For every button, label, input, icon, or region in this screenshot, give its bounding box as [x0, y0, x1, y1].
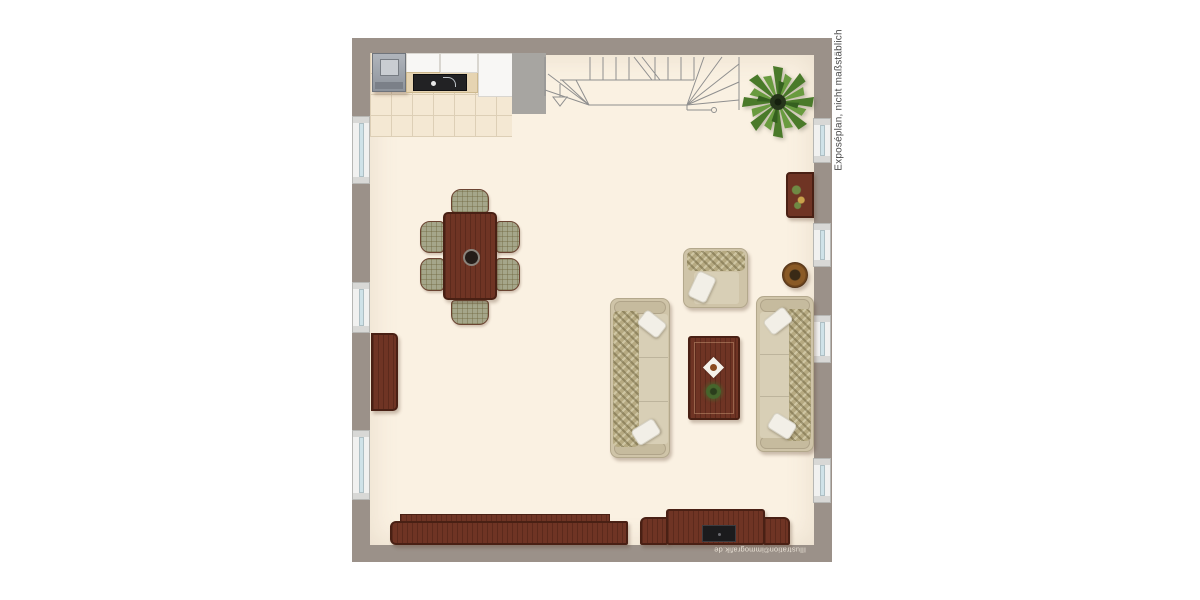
tv-screen-icon [702, 525, 736, 542]
tv-lowboard [666, 509, 765, 545]
dining-chair [420, 221, 444, 253]
round-side-table [782, 262, 808, 288]
stove-icon [372, 53, 406, 92]
tv-lowboard [640, 517, 668, 545]
potted-plant-icon [736, 60, 820, 144]
sideboard [786, 172, 814, 218]
table-plant-icon [706, 384, 721, 399]
coffee-table [688, 336, 740, 420]
sideboard-bottom [390, 521, 628, 545]
sink-cooktop-icon [413, 74, 467, 91]
floorplan [352, 38, 832, 562]
tv-lowboard [763, 517, 790, 545]
window [813, 315, 831, 363]
armchair-back-cushion [687, 251, 745, 271]
window [352, 282, 370, 333]
centerpiece-bowl-icon [463, 249, 480, 266]
tray-icon [703, 357, 724, 378]
wall-stub [512, 53, 546, 114]
sofa-left [610, 298, 670, 458]
sofa-right [756, 296, 814, 452]
dining-chair [420, 258, 444, 291]
window [352, 430, 370, 500]
side-note: Exposéplan, nicht maßstäblich [834, 29, 845, 170]
sideboard [371, 333, 398, 411]
window [813, 223, 831, 267]
dining-chair [451, 189, 489, 213]
armchair [683, 248, 748, 308]
stair-arrow-icon [553, 97, 567, 106]
dining-table [443, 212, 497, 300]
window [352, 116, 370, 184]
credit-watermark: Illustration©immografik.de [714, 546, 806, 555]
staircase [542, 56, 742, 116]
dining-chair [451, 300, 489, 325]
kitchen-counter [478, 53, 513, 97]
dining-chair [496, 258, 520, 291]
window [813, 458, 831, 503]
dining-chair [496, 221, 520, 253]
kitchen-counter [440, 53, 478, 73]
